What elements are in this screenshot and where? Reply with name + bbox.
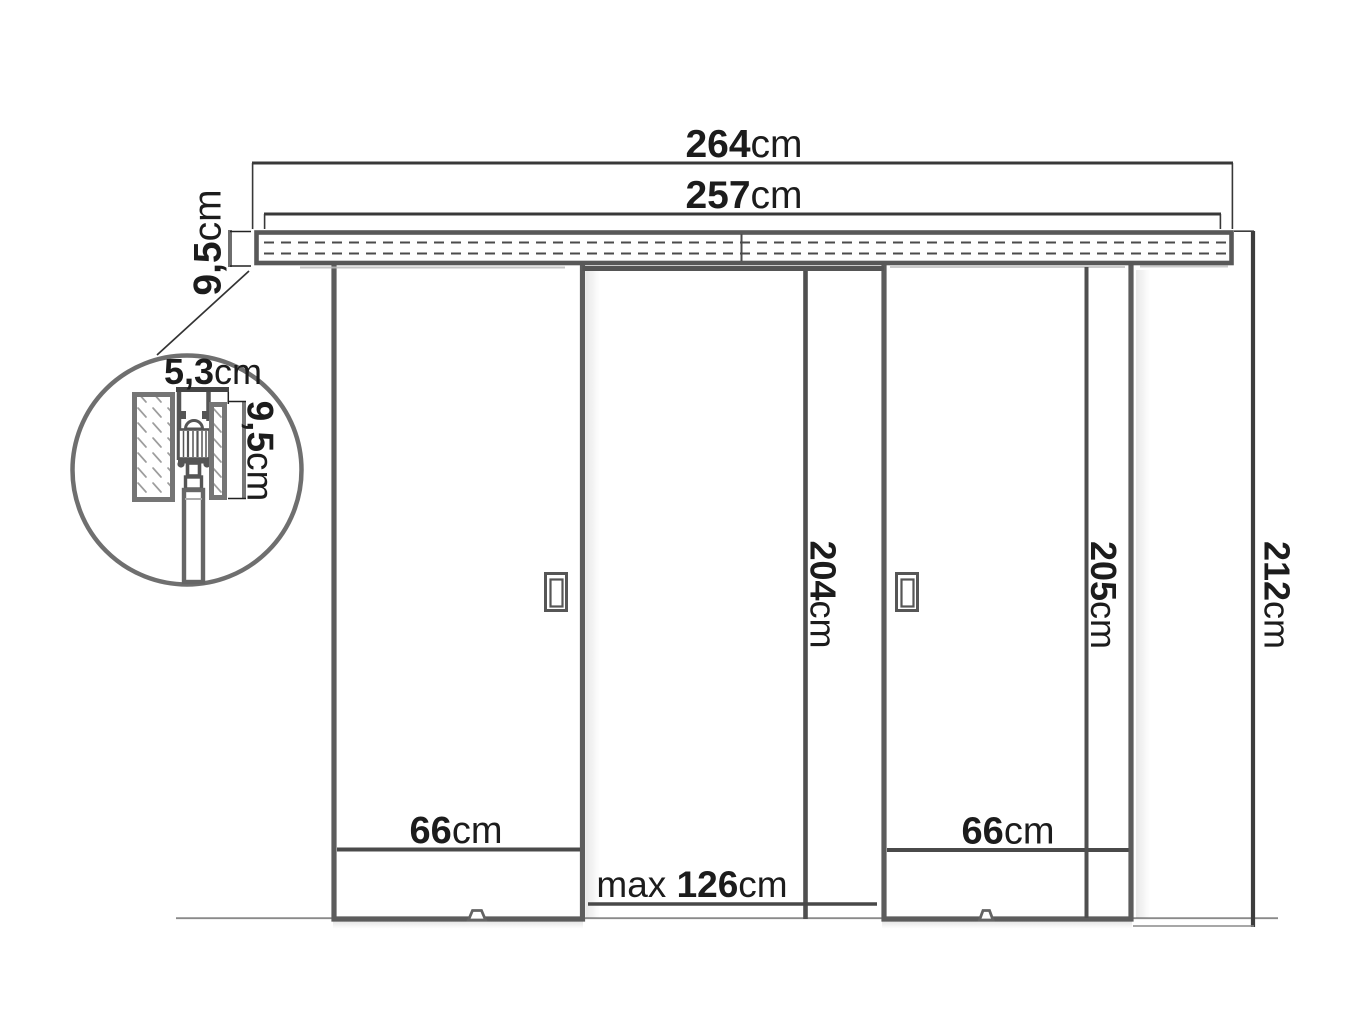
svg-text:204cm: 204cm <box>803 540 844 648</box>
svg-text:264cm: 264cm <box>685 123 802 166</box>
svg-text:9,5cm: 9,5cm <box>187 189 230 295</box>
svg-text:212cm: 212cm <box>1257 541 1298 649</box>
svg-text:max 126cm: max 126cm <box>596 864 787 905</box>
svg-text:257cm: 257cm <box>685 174 802 217</box>
svg-text:66cm: 66cm <box>962 811 1055 853</box>
svg-text:66cm: 66cm <box>410 810 503 852</box>
svg-text:5,3cm: 5,3cm <box>164 351 262 392</box>
svg-text:9,5cm: 9,5cm <box>240 401 281 502</box>
svg-text:205cm: 205cm <box>1083 541 1124 649</box>
